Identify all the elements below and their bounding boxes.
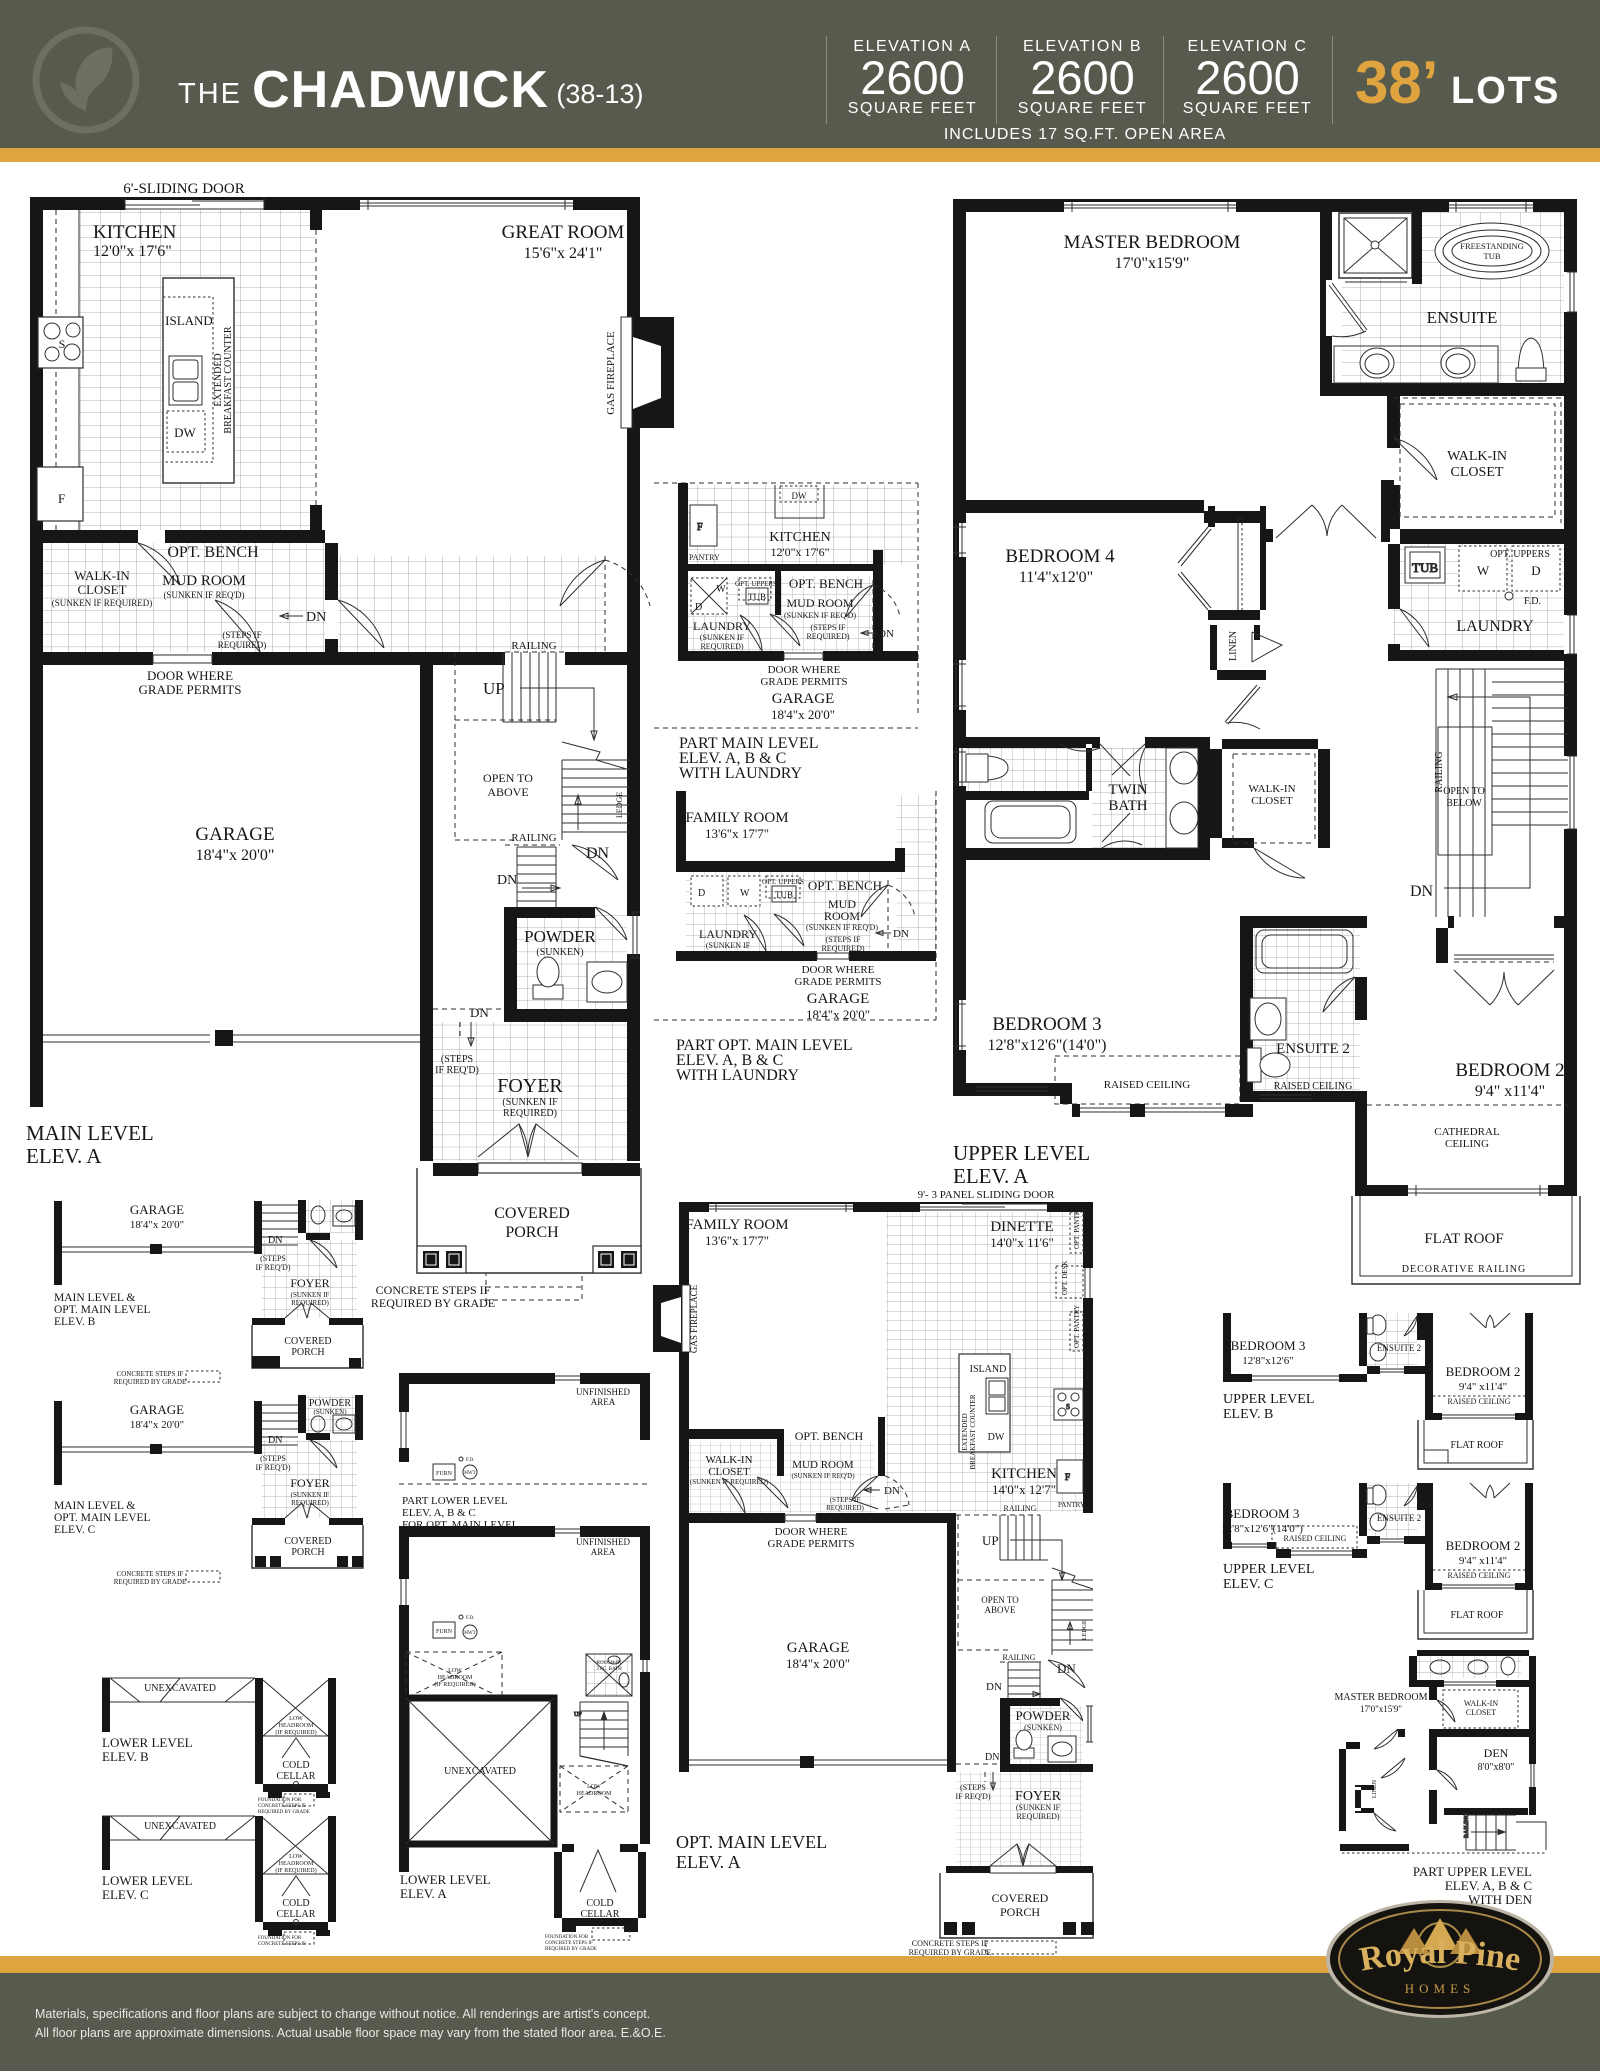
svg-text:GARAGE: GARAGE xyxy=(130,1202,184,1217)
svg-text:REQUIRED): REQUIRED) xyxy=(1016,1812,1059,1821)
svg-text:WALK-IN: WALK-IN xyxy=(1248,783,1295,795)
svg-text:(SUNKEN IF: (SUNKEN IF xyxy=(502,1097,558,1108)
svg-text:FOUNDATION FOR: FOUNDATION FOR xyxy=(545,1935,589,1940)
svg-text:COVERED: COVERED xyxy=(284,1536,331,1547)
svg-text:DN: DN xyxy=(306,610,326,625)
svg-text:OPT. PANTRY: OPT. PANTRY xyxy=(1073,1305,1081,1348)
svg-text:REQUIRED BY GRADE: REQUIRED BY GRADE xyxy=(371,1296,495,1310)
svg-text:WITH LAUNDRY: WITH LAUNDRY xyxy=(679,765,803,782)
svg-text:DW: DW xyxy=(174,425,196,440)
svg-text:DOOR WHERE: DOOR WHERE xyxy=(802,964,875,976)
svg-text:ABOVE: ABOVE xyxy=(487,785,528,799)
svg-text:FURN: FURN xyxy=(436,1471,453,1477)
svg-text:DN: DN xyxy=(878,628,894,640)
svg-text:6'-SLIDING DOOR: 6'-SLIDING DOOR xyxy=(123,181,244,197)
svg-text:(SUNKEN): (SUNKEN) xyxy=(536,947,583,958)
svg-text:OPT. BENCH: OPT. BENCH xyxy=(167,544,259,561)
svg-text:REQUIRED): REQUIRED) xyxy=(218,640,267,650)
svg-text:FOYER: FOYER xyxy=(1015,1789,1062,1804)
svg-text:DN: DN xyxy=(985,1752,999,1763)
svg-text:9'4" x11'4": 9'4" x11'4" xyxy=(1475,1083,1545,1100)
svg-text:W: W xyxy=(716,584,726,595)
svg-text:13'6"x 17'7": 13'6"x 17'7" xyxy=(705,826,769,841)
svg-text:BEDROOM 2: BEDROOM 2 xyxy=(1455,1060,1564,1081)
svg-text:(STEPS IF: (STEPS IF xyxy=(222,630,261,640)
svg-text:KITCHEN: KITCHEN xyxy=(769,530,830,545)
svg-text:LAUNDRY: LAUNDRY xyxy=(1456,618,1534,635)
svg-text:REQUIRED BY GRADE: REQUIRED BY GRADE xyxy=(909,1948,992,1957)
svg-text:PORCH: PORCH xyxy=(1000,1905,1040,1919)
svg-text:ELEV. A, B & C: ELEV. A, B & C xyxy=(402,1507,476,1519)
svg-text:LEDGE: LEDGE xyxy=(615,792,624,818)
svg-text:ELEV. A: ELEV. A xyxy=(400,1886,447,1901)
svg-text:GARAGE: GARAGE xyxy=(130,1402,184,1417)
svg-text:18'4"x 20'0": 18'4"x 20'0" xyxy=(130,1219,184,1231)
svg-text:UPPER LEVEL: UPPER LEVEL xyxy=(1223,1392,1314,1407)
svg-text:ELEV. A: ELEV. A xyxy=(953,1164,1029,1188)
svg-text:WITH LAUNDRY: WITH LAUNDRY xyxy=(676,1067,800,1084)
svg-text:FURN: FURN xyxy=(436,1629,453,1635)
svg-text:(SUNKEN IF: (SUNKEN IF xyxy=(291,1491,330,1499)
svg-text:OPT. BENCH: OPT. BENCH xyxy=(808,878,882,893)
svg-text:DW: DW xyxy=(988,1432,1005,1443)
svg-text:ENSUITE 2: ENSUITE 2 xyxy=(1377,1513,1421,1523)
svg-text:GRADE PERMITS: GRADE PERMITS xyxy=(794,976,881,988)
svg-text:GAS FIREPLACE: GAS FIREPLACE xyxy=(689,1284,699,1353)
svg-text:PANTRY: PANTRY xyxy=(1058,1501,1085,1509)
svg-text:(SUNKEN IF REQUIRED): (SUNKEN IF REQUIRED) xyxy=(690,1478,769,1486)
svg-text:ELEV. B: ELEV. B xyxy=(54,1316,96,1328)
svg-text:GAS FIREPLACE: GAS FIREPLACE xyxy=(605,331,617,415)
svg-text:12'8"x12'6": 12'8"x12'6" xyxy=(1242,1355,1293,1367)
svg-text:MAIN LEVEL: MAIN LEVEL xyxy=(26,1121,154,1145)
svg-text:LOWER LEVEL: LOWER LEVEL xyxy=(102,1735,193,1750)
svg-text:OPT. DESK: OPT. DESK xyxy=(1061,1261,1069,1295)
svg-text:ELEV. C: ELEV. C xyxy=(54,1524,96,1536)
svg-text:3 PC. BATH: 3 PC. BATH xyxy=(596,1667,622,1672)
svg-text:GREAT ROOM: GREAT ROOM xyxy=(502,222,625,243)
svg-text:TUB: TUB xyxy=(1412,560,1438,575)
svg-text:BATH: BATH xyxy=(1108,798,1147,814)
svg-text:WITH DEN: WITH DEN xyxy=(1468,1892,1533,1907)
svg-text:HWT: HWT xyxy=(464,1631,475,1636)
svg-text:TUB: TUB xyxy=(1484,251,1501,261)
svg-text:LINEN: LINEN xyxy=(1228,631,1239,661)
svg-text:OPEN TO: OPEN TO xyxy=(483,771,533,785)
svg-text:FOYER: FOYER xyxy=(290,1276,329,1290)
svg-text:CELLAR: CELLAR xyxy=(277,1909,316,1920)
svg-text:(SUNKEN IF REQ'D): (SUNKEN IF REQ'D) xyxy=(784,611,856,620)
svg-text:CONCRETE STEPS IF: CONCRETE STEPS IF xyxy=(545,1941,593,1946)
svg-text:OPT. MAIN LEVEL: OPT. MAIN LEVEL xyxy=(676,1832,827,1852)
svg-text:RAISED CEILING: RAISED CEILING xyxy=(1274,1081,1353,1092)
svg-text:MUD ROOM: MUD ROOM xyxy=(786,596,853,610)
svg-text:9'4" x11'4": 9'4" x11'4" xyxy=(1459,1381,1507,1393)
svg-text:ELEV. B: ELEV. B xyxy=(1223,1407,1273,1422)
svg-text:CONCRETE STEPS IF: CONCRETE STEPS IF xyxy=(376,1283,491,1297)
svg-text:HEADROOM: HEADROOM xyxy=(438,1675,473,1681)
svg-text:REQUIRED BY GRADE: REQUIRED BY GRADE xyxy=(114,1578,186,1586)
svg-text:BELOW: BELOW xyxy=(1446,798,1482,809)
svg-text:(STEPS IF: (STEPS IF xyxy=(826,935,861,944)
svg-text:DN: DN xyxy=(586,845,610,862)
svg-text:(STEPS IF: (STEPS IF xyxy=(830,1496,861,1504)
svg-text:18'4"x 20'0": 18'4"x 20'0" xyxy=(786,1656,850,1671)
svg-text:LOW: LOW xyxy=(448,1668,462,1674)
svg-text:GARAGE: GARAGE xyxy=(195,824,274,845)
svg-text:OPT. UPPERS: OPT. UPPERS xyxy=(1490,549,1550,560)
svg-text:(STEPS IF: (STEPS IF xyxy=(811,623,846,632)
svg-text:FAMILY ROOM: FAMILY ROOM xyxy=(685,810,788,826)
svg-text:IF REQ'D): IF REQ'D) xyxy=(435,1065,479,1076)
svg-text:FLAT ROOF: FLAT ROOF xyxy=(1424,1231,1503,1247)
svg-text:CELLAR: CELLAR xyxy=(277,1771,316,1782)
svg-text:14'0"x 12'7": 14'0"x 12'7" xyxy=(992,1482,1056,1497)
svg-text:CLOSET: CLOSET xyxy=(708,1466,750,1478)
svg-text:RAISED CEILING: RAISED CEILING xyxy=(1284,1534,1347,1543)
svg-text:FOUNDATION FOR: FOUNDATION FOR xyxy=(258,1936,302,1941)
svg-text:(SUNKEN IF: (SUNKEN IF xyxy=(1016,1803,1061,1812)
svg-text:FAMILY ROOM: FAMILY ROOM xyxy=(685,1217,788,1233)
svg-text:RAILING: RAILING xyxy=(511,832,556,844)
svg-text:13'6"x 17'7": 13'6"x 17'7" xyxy=(705,1233,769,1248)
svg-text:PORCH: PORCH xyxy=(291,1547,324,1558)
svg-text:LOWER LEVEL: LOWER LEVEL xyxy=(102,1873,193,1888)
svg-text:LOW: LOW xyxy=(289,1716,303,1722)
svg-text:FOYER: FOYER xyxy=(497,1075,563,1097)
svg-text:WALK-IN: WALK-IN xyxy=(1464,1699,1498,1708)
svg-text:GRADE PERMITS: GRADE PERMITS xyxy=(760,676,847,688)
svg-text:UNEXCAVATED: UNEXCAVATED xyxy=(444,1766,516,1777)
svg-text:DN: DN xyxy=(884,1485,900,1497)
svg-text:BREAKFAST COUNTER: BREAKFAST COUNTER xyxy=(969,1394,977,1469)
svg-text:12'8"x12'6"(14'0"): 12'8"x12'6"(14'0") xyxy=(988,1037,1107,1054)
svg-text:(STEPS: (STEPS xyxy=(441,1054,473,1065)
svg-text:LOW: LOW xyxy=(289,1854,303,1860)
svg-text:WALK-IN: WALK-IN xyxy=(1447,449,1507,464)
svg-text:OPEN TO: OPEN TO xyxy=(981,1595,1019,1605)
svg-text:DOOR WHERE: DOOR WHERE xyxy=(775,1526,848,1538)
svg-text:CEILING: CEILING xyxy=(1445,1138,1489,1150)
svg-text:ISLAND: ISLAND xyxy=(970,1364,1007,1375)
svg-text:FOYER: FOYER xyxy=(290,1476,329,1490)
svg-text:FOUNDATION FOR: FOUNDATION FOR xyxy=(258,1798,302,1803)
svg-text:F: F xyxy=(1065,1472,1070,1482)
svg-text:REQUIRED BY GRADE: REQUIRED BY GRADE xyxy=(114,1378,186,1386)
svg-text:UP: UP xyxy=(982,1533,999,1548)
svg-text:CONCRETE STEPS IF: CONCRETE STEPS IF xyxy=(912,1939,989,1948)
svg-text:FLAT ROOF: FLAT ROOF xyxy=(1451,1610,1504,1621)
svg-text:HEADROOM: HEADROOM xyxy=(577,1791,612,1797)
svg-text:DN: DN xyxy=(986,1681,1002,1693)
svg-text:ENSUITE: ENSUITE xyxy=(1427,308,1498,327)
svg-text:DN: DN xyxy=(893,928,909,940)
svg-text:ABOVE: ABOVE xyxy=(985,1605,1017,1615)
svg-text:RAILING: RAILING xyxy=(1004,1504,1037,1513)
svg-text:PANTRY: PANTRY xyxy=(689,553,720,562)
svg-text:8'0"x8'0": 8'0"x8'0" xyxy=(1478,1762,1515,1773)
svg-text:(SUNKEN IF: (SUNKEN IF xyxy=(700,633,745,642)
svg-text:HEADROOM: HEADROOM xyxy=(279,1723,314,1729)
svg-text:REQUIRED): REQUIRED) xyxy=(826,1504,864,1512)
svg-text:BEDROOM 3: BEDROOM 3 xyxy=(1231,1338,1306,1353)
svg-text:(SUNKEN IF REQ'D): (SUNKEN IF REQ'D) xyxy=(791,1472,855,1480)
svg-text:DN: DN xyxy=(1410,883,1434,900)
svg-text:MASTER BEDROOM: MASTER BEDROOM xyxy=(1064,232,1241,253)
svg-text:COLD: COLD xyxy=(282,1760,309,1771)
svg-text:DECORATIVE RAILING: DECORATIVE RAILING xyxy=(1402,1264,1526,1275)
svg-text:BREAKFAST COUNTER: BREAKFAST COUNTER xyxy=(223,326,234,433)
svg-text:9'4" x11'4": 9'4" x11'4" xyxy=(1459,1555,1507,1567)
svg-text:LOWER LEVEL: LOWER LEVEL xyxy=(400,1872,491,1887)
svg-text:(SUNKEN IF REQ'D): (SUNKEN IF REQ'D) xyxy=(806,923,878,932)
svg-text:D: D xyxy=(698,888,705,899)
svg-text:OPT. PANTRY: OPT. PANTRY xyxy=(1073,1206,1081,1249)
svg-text:MAIN LEVEL &: MAIN LEVEL & xyxy=(54,1500,135,1512)
svg-text:TUB: TUB xyxy=(748,592,766,602)
svg-text:CLOSET: CLOSET xyxy=(1251,795,1293,807)
svg-text:ENSUITE 2: ENSUITE 2 xyxy=(1377,1343,1421,1353)
svg-text:18'4"x 20'0": 18'4"x 20'0" xyxy=(771,707,835,722)
svg-text:GRADE PERMITS: GRADE PERMITS xyxy=(767,1538,854,1550)
svg-text:RAISED CEILING: RAISED CEILING xyxy=(1448,1397,1511,1406)
svg-text:12'0"x 17'6": 12'0"x 17'6" xyxy=(93,243,172,260)
svg-text:RAISED CEILING: RAISED CEILING xyxy=(1448,1571,1511,1580)
svg-text:LINEN: LINEN xyxy=(1372,1779,1378,1798)
svg-text:WALK-IN: WALK-IN xyxy=(705,1454,752,1466)
svg-text:CLOSET: CLOSET xyxy=(1451,465,1504,480)
svg-text:RAILING: RAILING xyxy=(511,640,556,652)
svg-text:MAIN LEVEL &: MAIN LEVEL & xyxy=(54,1292,135,1304)
svg-text:17'0"x15'9": 17'0"x15'9" xyxy=(1360,1704,1402,1714)
svg-text:ELEV. B: ELEV. B xyxy=(102,1749,149,1764)
svg-text:D: D xyxy=(1531,563,1540,578)
svg-text:F.D.: F.D. xyxy=(466,1458,475,1463)
svg-text:RAILING: RAILING xyxy=(1464,1813,1470,1838)
svg-text:PART LOWER LEVEL: PART LOWER LEVEL xyxy=(402,1495,508,1507)
svg-text:UNFINISHED: UNFINISHED xyxy=(576,1387,631,1397)
svg-text:ISLAND: ISLAND xyxy=(165,313,213,328)
svg-text:(SUNKEN IF REQ'D): (SUNKEN IF REQ'D) xyxy=(163,590,244,600)
svg-text:RAILING: RAILING xyxy=(1003,1653,1036,1662)
svg-text:PORCH: PORCH xyxy=(505,1224,559,1241)
svg-text:ELEV. C: ELEV. C xyxy=(102,1887,149,1902)
svg-text:PART UPPER LEVEL: PART UPPER LEVEL xyxy=(1413,1864,1532,1879)
svg-text:MASTER BEDROOM: MASTER BEDROOM xyxy=(1334,1692,1427,1703)
svg-text:WALK-IN: WALK-IN xyxy=(74,568,130,583)
svg-text:UNEXCAVATED: UNEXCAVATED xyxy=(144,1821,216,1832)
svg-text:DEN: DEN xyxy=(1484,1746,1509,1760)
svg-text:OPT. MAIN LEVEL: OPT. MAIN LEVEL xyxy=(54,1512,151,1524)
svg-text:COLD: COLD xyxy=(282,1898,309,1909)
svg-text:DN: DN xyxy=(497,873,517,888)
svg-text:POWDER: POWDER xyxy=(1016,1708,1071,1723)
svg-text:OPT. UPPERS: OPT. UPPERS xyxy=(735,580,777,588)
svg-text:OPT. BENCH: OPT. BENCH xyxy=(795,1429,864,1443)
svg-text:ROOM: ROOM xyxy=(824,909,860,923)
svg-text:F.D.: F.D. xyxy=(1524,596,1541,607)
svg-text:LOW: LOW xyxy=(587,1784,601,1790)
svg-text:TUB: TUB xyxy=(775,890,793,900)
svg-text:REQUIRED BY GRADE: REQUIRED BY GRADE xyxy=(545,1947,597,1952)
svg-text:14'0"x 11'6": 14'0"x 11'6" xyxy=(990,1235,1054,1250)
svg-text:(IF REQUIRED): (IF REQUIRED) xyxy=(275,1729,316,1736)
svg-text:BEDROOM 4: BEDROOM 4 xyxy=(1005,546,1115,567)
svg-text:OPEN TO: OPEN TO xyxy=(1443,786,1485,797)
svg-text:18'4"x 20'0": 18'4"x 20'0" xyxy=(806,1007,870,1022)
svg-text:ELEV. A, B & C: ELEV. A, B & C xyxy=(1445,1878,1532,1893)
svg-text:LEDGE: LEDGE xyxy=(1082,1620,1088,1640)
svg-text:FREESTANDING: FREESTANDING xyxy=(1460,241,1524,251)
svg-text:CONCRETE STEPS IF: CONCRETE STEPS IF xyxy=(117,1370,184,1378)
svg-text:DOOR WHERE: DOOR WHERE xyxy=(768,664,841,676)
svg-text:RAISED CEILING: RAISED CEILING xyxy=(1104,1079,1191,1091)
svg-text:GRADE PERMITS: GRADE PERMITS xyxy=(139,682,242,697)
svg-text:ELEV. A: ELEV. A xyxy=(676,1852,741,1872)
svg-text:F: F xyxy=(58,491,65,506)
svg-text:(SUNKEN IF: (SUNKEN IF xyxy=(291,1291,330,1299)
svg-text:UNEXCAVATED: UNEXCAVATED xyxy=(144,1683,216,1694)
svg-text:ELEV. C: ELEV. C xyxy=(1223,1577,1273,1592)
svg-text:11'4"x12'0": 11'4"x12'0" xyxy=(1019,569,1093,586)
svg-text:COVERED: COVERED xyxy=(284,1336,331,1347)
svg-text:OPT. UPPERS: OPT. UPPERS xyxy=(762,878,804,886)
svg-text:(SUNKEN IF REQUIRED): (SUNKEN IF REQUIRED) xyxy=(52,598,153,608)
svg-text:KITCHEN: KITCHEN xyxy=(93,222,177,243)
svg-text:W: W xyxy=(1477,563,1490,578)
svg-text:(SUNKEN IF: (SUNKEN IF xyxy=(706,941,751,950)
svg-text:AREA: AREA xyxy=(591,1397,616,1407)
svg-text:(STEPS: (STEPS xyxy=(960,1783,986,1792)
svg-text:S: S xyxy=(59,337,66,351)
svg-text:9'- 3 PANEL SLIDING DOOR: 9'- 3 PANEL SLIDING DOOR xyxy=(918,1189,1055,1201)
svg-text:OPT. MAIN LEVEL: OPT. MAIN LEVEL xyxy=(54,1304,151,1316)
svg-text:DN: DN xyxy=(470,1005,489,1020)
svg-text:REQUIRED): REQUIRED) xyxy=(503,1108,557,1119)
svg-text:PORCH: PORCH xyxy=(291,1347,324,1358)
svg-text:BEDROOM 3: BEDROOM 3 xyxy=(1225,1506,1300,1521)
svg-text:IF REQ'D): IF REQ'D) xyxy=(956,1792,991,1801)
svg-text:POWDER: POWDER xyxy=(524,927,596,946)
svg-text:UP: UP xyxy=(483,679,505,698)
svg-text:(SUNKEN): (SUNKEN) xyxy=(1024,1723,1062,1732)
svg-text:LAUNDRY: LAUNDRY xyxy=(693,619,751,633)
svg-text:HEADROOM: HEADROOM xyxy=(279,1861,314,1867)
svg-text:HWT: HWT xyxy=(464,1471,475,1476)
svg-text:DOOR WHERE: DOOR WHERE xyxy=(147,668,233,683)
svg-text:BEDROOM 2: BEDROOM 2 xyxy=(1446,1538,1521,1553)
svg-text:ENSUITE 2: ENSUITE 2 xyxy=(1276,1041,1350,1057)
svg-text:(IF REQUIRED): (IF REQUIRED) xyxy=(434,1681,475,1688)
svg-text:(IF REQUIRED): (IF REQUIRED) xyxy=(275,1867,316,1874)
svg-text:UNFINISHED: UNFINISHED xyxy=(576,1537,631,1547)
svg-text:EXTENDED: EXTENDED xyxy=(961,1413,969,1450)
svg-text:S: S xyxy=(1066,1403,1070,1411)
svg-text:FLAT ROOF: FLAT ROOF xyxy=(1451,1440,1504,1451)
svg-text:CLOSET: CLOSET xyxy=(77,582,126,597)
svg-text:CONCRETE STEPS IF: CONCRETE STEPS IF xyxy=(117,1570,184,1578)
svg-text:LAUNDRY: LAUNDRY xyxy=(699,927,757,941)
svg-text:KITCHEN: KITCHEN xyxy=(991,1466,1057,1482)
svg-text:BEDROOM 3: BEDROOM 3 xyxy=(992,1014,1101,1035)
svg-text:F.D.: F.D. xyxy=(466,1616,475,1621)
svg-text:12'0"x 17'6": 12'0"x 17'6" xyxy=(770,545,829,559)
svg-text:UP: UP xyxy=(574,1712,582,1718)
svg-text:COVERED: COVERED xyxy=(992,1891,1049,1905)
svg-text:MUD ROOM: MUD ROOM xyxy=(792,1459,854,1471)
svg-text:18'4"x 20'0": 18'4"x 20'0" xyxy=(196,847,275,864)
svg-text:17'0"x15'9": 17'0"x15'9" xyxy=(1115,255,1190,272)
svg-text:UPPER LEVEL: UPPER LEVEL xyxy=(1223,1562,1314,1577)
svg-text:18'4"x 20'0": 18'4"x 20'0" xyxy=(130,1419,184,1431)
svg-text:CELLAR: CELLAR xyxy=(581,1909,620,1920)
svg-text:MUD ROOM: MUD ROOM xyxy=(162,573,246,589)
svg-text:GARAGE: GARAGE xyxy=(787,1640,850,1656)
svg-text:AREA: AREA xyxy=(591,1547,616,1557)
svg-text:UPPER LEVEL: UPPER LEVEL xyxy=(953,1141,1090,1165)
svg-text:RAILING: RAILING xyxy=(1434,751,1445,792)
svg-text:CLOSET: CLOSET xyxy=(1466,1708,1496,1717)
svg-text:DINETTE: DINETTE xyxy=(990,1219,1053,1235)
svg-text:OPT. BENCH: OPT. BENCH xyxy=(789,576,863,591)
svg-text:DW: DW xyxy=(792,491,807,501)
svg-text:COVERED: COVERED xyxy=(494,1205,570,1222)
svg-text:15'6"x 24'1": 15'6"x 24'1" xyxy=(524,245,603,262)
svg-text:ELEV. A: ELEV. A xyxy=(26,1144,102,1168)
svg-text:GARAGE: GARAGE xyxy=(772,691,835,707)
svg-text:REQUIRED): REQUIRED) xyxy=(806,632,849,641)
svg-text:COLD: COLD xyxy=(586,1898,613,1909)
svg-text:BEDROOM 2: BEDROOM 2 xyxy=(1446,1364,1521,1379)
svg-text:F: F xyxy=(697,522,703,533)
svg-text:REQUIRED): REQUIRED) xyxy=(700,642,743,651)
svg-text:CATHEDRAL: CATHEDRAL xyxy=(1434,1126,1500,1138)
svg-text:D: D xyxy=(695,602,702,613)
svg-text:REQUIRED BY GRADE: REQUIRED BY GRADE xyxy=(258,1810,310,1815)
svg-text:W: W xyxy=(740,888,750,899)
svg-text:GARAGE: GARAGE xyxy=(807,991,870,1007)
